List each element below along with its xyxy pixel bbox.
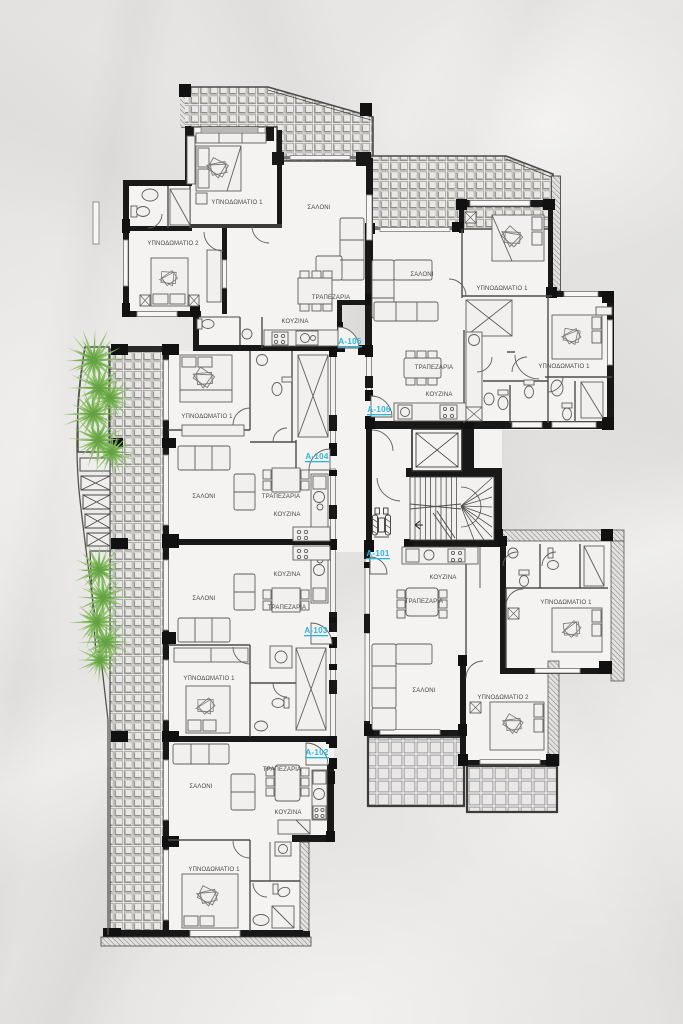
svg-text:ΣΑΛΟΝΙ: ΣΑΛΟΝΙ — [307, 205, 330, 211]
svg-text:ΚΟΥΖΙΝΑ: ΚΟΥΖΙΝΑ — [281, 319, 308, 325]
svg-text:ΥΠΝΟΔΩΜΑΤΙΟ 1: ΥΠΝΟΔΩΜΑΤΙΟ 1 — [476, 286, 528, 292]
svg-text:ΚΟΥΖΙΝΑ: ΚΟΥΖΙΝΑ — [425, 392, 452, 398]
svg-text:ΤΡΑΠΕΖΑΡΙΑ: ΤΡΑΠΕΖΑΡΙΑ — [268, 605, 306, 611]
svg-text:A-105: A-105 — [338, 337, 362, 346]
svg-text:A-103: A-103 — [304, 626, 328, 635]
svg-text:ΤΡΑΠΕΖΑΡΙΑ: ΤΡΑΠΕΖΑΡΙΑ — [415, 365, 453, 371]
svg-text:ΚΟΥΖΙΝΑ: ΚΟΥΖΙΝΑ — [273, 572, 300, 578]
svg-text:ΥΠΝΟΔΩΜΑΤΙΟ 1: ΥΠΝΟΔΩΜΑΤΙΟ 1 — [181, 414, 233, 420]
svg-text:ΤΡΑΠΕΖΑΡΙΑ: ΤΡΑΠΕΖΑΡΙΑ — [312, 295, 350, 301]
svg-text:ΣΑΛΟΝΙ: ΣΑΛΟΝΙ — [412, 688, 435, 694]
svg-text:ΥΠΝΟΔΩΜΑΤΙΟ 1: ΥΠΝΟΔΩΜΑΤΙΟ 1 — [540, 600, 592, 606]
svg-text:ΥΠΝΟΔΩΜΑΤΙΟ 2: ΥΠΝΟΔΩΜΑΤΙΟ 2 — [147, 241, 199, 247]
svg-text:ΥΠΝΟΔΩΜΑΤΙΟ 1: ΥΠΝΟΔΩΜΑΤΙΟ 1 — [188, 867, 240, 873]
svg-text:ΣΑΛΟΝΙ: ΣΑΛΟΝΙ — [189, 784, 212, 790]
svg-text:ΥΠΝΟΔΩΜΑΤΙΟ 2: ΥΠΝΟΔΩΜΑΤΙΟ 2 — [477, 695, 529, 701]
svg-text:ΣΑΛΟΝΙ: ΣΑΛΟΝΙ — [192, 596, 215, 602]
svg-text:ΚΟΥΖΙΝΑ: ΚΟΥΖΙΝΑ — [273, 512, 300, 518]
svg-text:A-104: A-104 — [305, 452, 329, 461]
svg-text:ΚΟΥΖΙΝΑ: ΚΟΥΖΙΝΑ — [429, 575, 456, 581]
svg-text:ΥΠΝΟΔΩΜΑΤΙΟ 1: ΥΠΝΟΔΩΜΑΤΙΟ 1 — [538, 364, 590, 370]
svg-text:ΤΡΑΠΕΖΑΡΙΑ: ΤΡΑΠΕΖΑΡΙΑ — [262, 494, 300, 500]
svg-text:ΤΡΑΠΕΖΑΡΙΑ: ΤΡΑΠΕΖΑΡΙΑ — [263, 767, 301, 773]
svg-text:A-101: A-101 — [366, 549, 390, 558]
svg-text:ΚΟΥΖΙΝΑ: ΚΟΥΖΙΝΑ — [274, 810, 301, 816]
svg-text:ΥΠΝΟΔΩΜΑΤΙΟ 1: ΥΠΝΟΔΩΜΑΤΙΟ 1 — [211, 200, 263, 206]
svg-text:ΣΑΛΟΝΙ: ΣΑΛΟΝΙ — [192, 494, 215, 500]
svg-text:ΥΠΝΟΔΩΜΑΤΙΟ 1: ΥΠΝΟΔΩΜΑΤΙΟ 1 — [183, 676, 235, 682]
svg-text:ΣΑΛΟΝΙ: ΣΑΛΟΝΙ — [410, 272, 433, 278]
svg-text:A-102: A-102 — [305, 748, 329, 757]
svg-text:A-106: A-106 — [367, 405, 391, 414]
svg-text:ΤΡΑΠΕΖΑΡΙΑ: ΤΡΑΠΕΖΑΡΙΑ — [405, 599, 443, 605]
